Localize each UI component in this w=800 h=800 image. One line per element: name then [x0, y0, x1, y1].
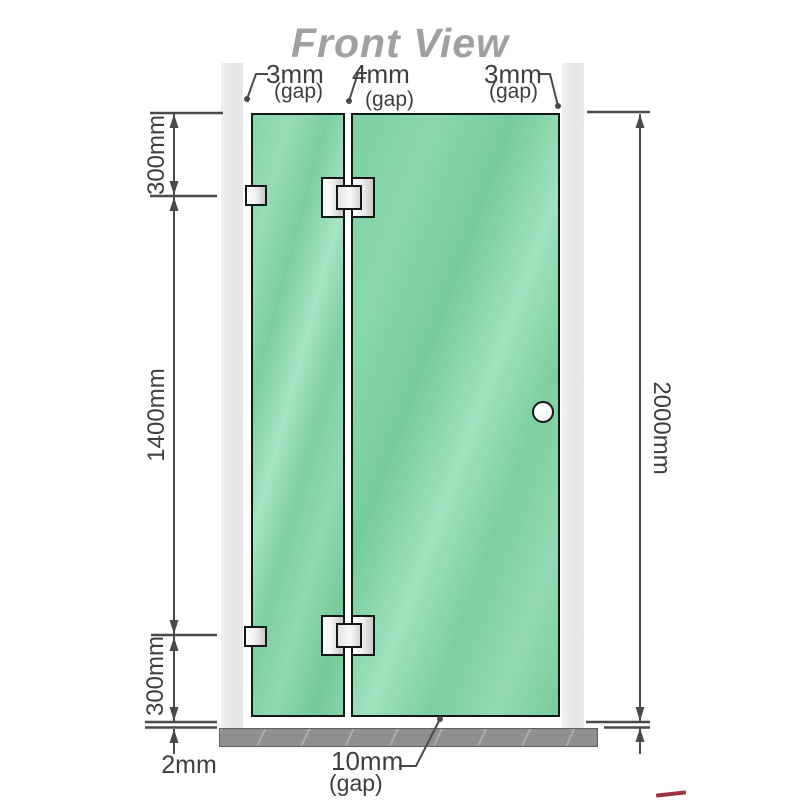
door-glass-panel [351, 113, 560, 717]
door-bottom-gap-label: 10mm (gap) [331, 748, 403, 795]
top-hinge-connector [336, 185, 362, 210]
bottom-hinge-connector [336, 623, 362, 648]
wall-bracket-top [245, 185, 267, 206]
dimension-label-left-top: 300mm [143, 110, 171, 200]
gap-right-unit: (gap) [489, 81, 542, 102]
shower-screen-front-view-diagram: Front View [0, 0, 800, 800]
gap-label-center: 4mm (gap) [352, 61, 414, 110]
wall-bracket-bottom [244, 626, 267, 647]
right-wall [562, 63, 584, 728]
floor-gap-label: 2mm [150, 751, 228, 780]
gap-left-unit: (gap) [274, 81, 324, 102]
dimension-label-left-middle: 1400mm [143, 360, 171, 470]
gap-center-unit: (gap) [365, 89, 414, 110]
watermark-fragment [656, 790, 686, 797]
dimension-label-right: 2000mm [647, 368, 675, 488]
door-handle-knob [532, 401, 554, 423]
gap-center-value: 4mm [352, 61, 414, 87]
gap-label-left: 3mm (gap) [266, 61, 324, 102]
floor-base [219, 728, 598, 747]
left-wall [221, 63, 243, 728]
gap-label-right: 3mm (gap) [484, 61, 542, 102]
dimension-label-left-bottom: 300mm [142, 631, 170, 721]
